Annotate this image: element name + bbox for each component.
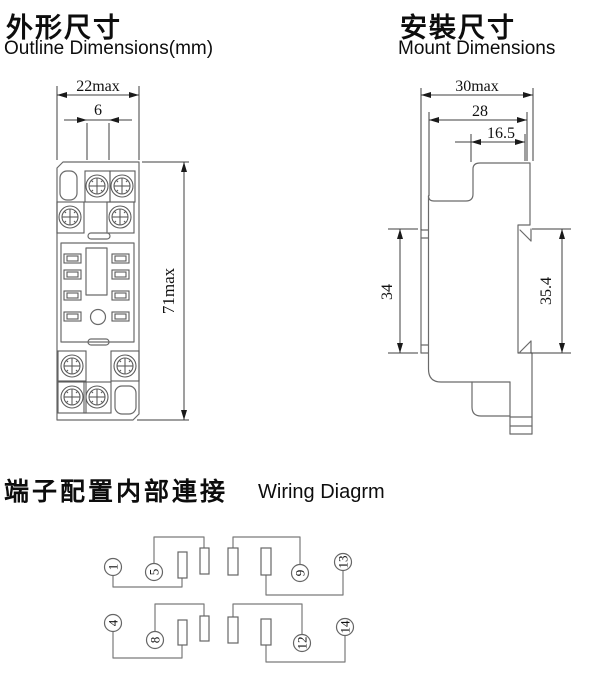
screw-terminal-icon bbox=[59, 206, 81, 228]
screw-terminal-icon bbox=[111, 175, 133, 197]
terminal-8-label: 8 bbox=[148, 637, 163, 644]
terminal-14-label: 14 bbox=[338, 620, 353, 634]
screw-terminal-icon bbox=[86, 386, 108, 408]
terminal-5: 5 bbox=[146, 564, 163, 581]
dim-71max-label: 71max bbox=[159, 267, 178, 314]
screw-terminal-icon bbox=[114, 355, 136, 377]
terminal-4-label: 4 bbox=[106, 619, 121, 626]
din-claw-top bbox=[520, 229, 531, 241]
dim-34-label: 34 bbox=[379, 284, 396, 300]
terminal-1-label: 1 bbox=[106, 564, 121, 571]
terminal-12: 12 bbox=[294, 635, 311, 652]
front-view-drawing: 22max 6 71max bbox=[57, 78, 189, 420]
terminal-8: 8 bbox=[147, 632, 164, 649]
terminal-13: 13 bbox=[335, 554, 352, 571]
wiring-diagram: 1 5 9 13 bbox=[105, 537, 354, 662]
technical-drawing-canvas: 22max 6 71max bbox=[0, 0, 600, 690]
screw-terminal-icon bbox=[61, 355, 83, 377]
side-view-drawing: 30max 28 16.5 bbox=[379, 78, 571, 434]
dim-16-5-label: 16.5 bbox=[487, 125, 515, 142]
dim-30max-label: 30max bbox=[455, 78, 499, 95]
terminal-5-label: 5 bbox=[147, 569, 162, 576]
screw-terminal-icon bbox=[109, 206, 131, 228]
dim-6: 6 bbox=[64, 102, 132, 160]
dim-34: 34 bbox=[379, 229, 418, 353]
terminal-14: 14 bbox=[337, 619, 354, 636]
terminal-4: 4 bbox=[105, 615, 122, 632]
dim-30max: 30max bbox=[421, 78, 533, 230]
dim-22max-label: 22max bbox=[76, 78, 120, 95]
screw-terminal-icon bbox=[86, 175, 108, 197]
dim-35-4-label: 35.4 bbox=[538, 277, 555, 305]
dim-35-4: 35.4 bbox=[518, 229, 571, 353]
dim-71max: 71max bbox=[137, 162, 189, 420]
datasheet-page: 外形尺寸 Outline Dimensions(mm) 安裝尺寸 Mount D… bbox=[0, 0, 600, 690]
dim-28: 28 bbox=[429, 103, 527, 196]
din-claw-bottom bbox=[520, 341, 531, 353]
dim-6-label: 6 bbox=[94, 102, 102, 119]
dim-22max: 22max bbox=[57, 78, 139, 160]
terminal-1: 1 bbox=[105, 559, 122, 576]
terminal-12-label: 12 bbox=[295, 637, 310, 650]
screw-terminal-icon bbox=[61, 386, 83, 408]
dim-16-5: 16.5 bbox=[455, 125, 525, 162]
terminal-13-label: 13 bbox=[336, 556, 351, 569]
terminal-9-label: 9 bbox=[293, 570, 308, 577]
terminal-9: 9 bbox=[292, 565, 309, 582]
dim-28-label: 28 bbox=[472, 103, 488, 120]
